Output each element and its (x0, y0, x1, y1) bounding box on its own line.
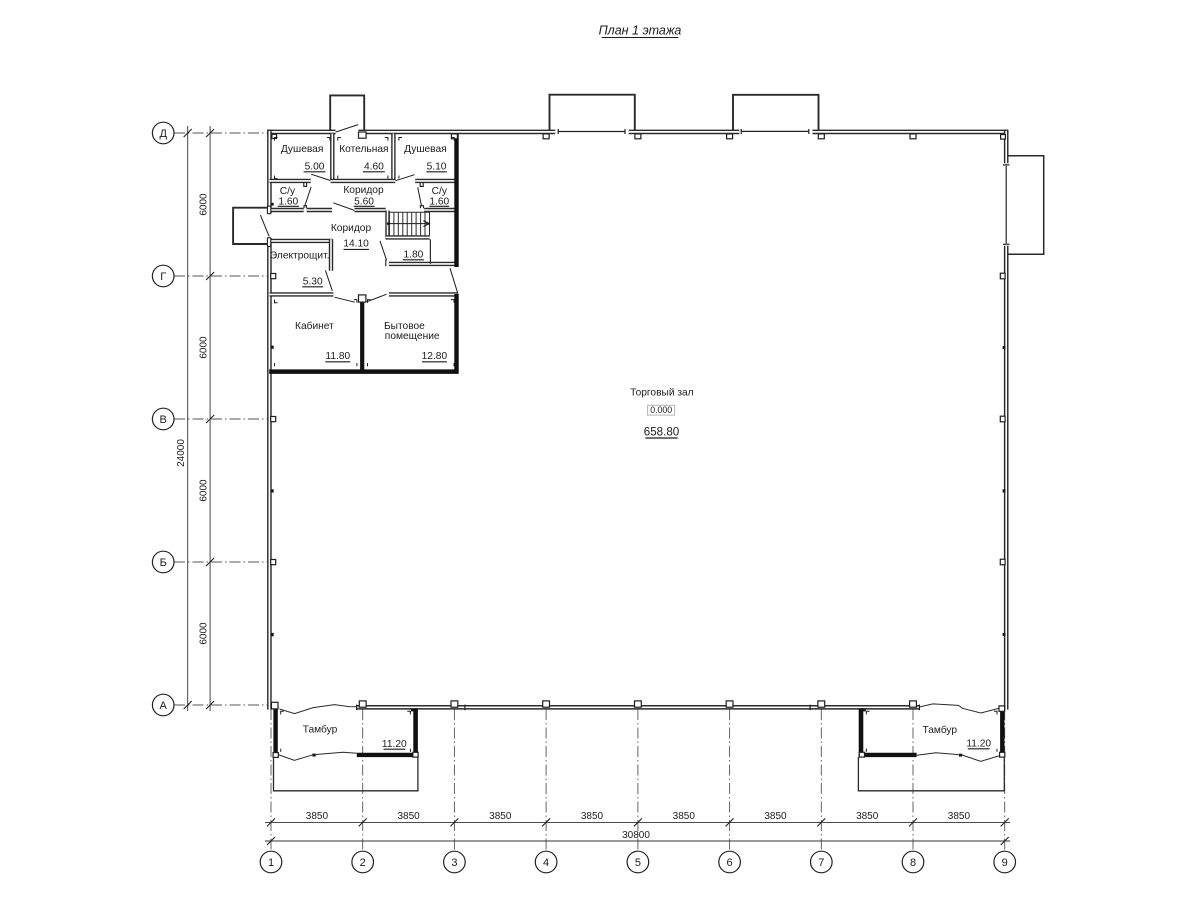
svg-text:5.60: 5.60 (354, 196, 374, 207)
svg-text:3850: 3850 (397, 811, 420, 822)
svg-text:Коридор: Коридор (343, 185, 384, 196)
svg-text:Электрощит.: Электрощит. (270, 251, 330, 262)
svg-text:С/у: С/у (432, 186, 448, 197)
svg-text:6: 6 (727, 857, 733, 869)
svg-text:Б: Б (160, 557, 167, 569)
svg-text:0.000: 0.000 (650, 405, 672, 415)
svg-text:Д: Д (159, 128, 167, 140)
svg-text:3850: 3850 (489, 811, 512, 822)
svg-text:3850: 3850 (306, 811, 329, 822)
svg-text:Коридор: Коридор (331, 223, 372, 234)
svg-text:Душевая: Душевая (404, 144, 447, 155)
svg-text:Кабинет: Кабинет (295, 320, 334, 332)
svg-text:1.60: 1.60 (429, 196, 449, 207)
svg-text:3850: 3850 (673, 811, 696, 822)
svg-text:5.10: 5.10 (427, 161, 447, 172)
svg-text:2: 2 (360, 857, 366, 869)
svg-text:6000: 6000 (199, 336, 210, 359)
svg-text:Г: Г (160, 271, 166, 283)
svg-text:А: А (160, 700, 168, 712)
svg-text:3850: 3850 (856, 811, 879, 822)
svg-text:3850: 3850 (764, 811, 787, 822)
svg-text:В: В (160, 414, 167, 426)
svg-text:6000: 6000 (199, 479, 210, 502)
svg-text:8: 8 (910, 857, 916, 869)
svg-text:Тамбур: Тамбур (923, 724, 958, 736)
svg-text:24000: 24000 (176, 439, 187, 467)
svg-text:5.30: 5.30 (303, 276, 323, 287)
svg-text:11.20: 11.20 (966, 738, 991, 749)
svg-text:4.60: 4.60 (364, 161, 384, 172)
svg-text:Тамбур: Тамбур (303, 723, 338, 735)
svg-text:1.60: 1.60 (278, 196, 298, 207)
svg-text:6000: 6000 (199, 193, 210, 216)
svg-text:12.80: 12.80 (422, 351, 448, 362)
svg-text:помещение: помещение (385, 331, 440, 342)
svg-text:План 1 этажа: План 1 этажа (599, 24, 682, 38)
svg-text:3850: 3850 (948, 811, 971, 822)
svg-text:5.00: 5.00 (305, 161, 325, 172)
svg-text:3: 3 (451, 857, 457, 869)
svg-text:9: 9 (1002, 857, 1008, 869)
svg-text:Торговый зал: Торговый зал (630, 387, 694, 398)
svg-text:7: 7 (818, 857, 824, 869)
svg-text:1.80: 1.80 (403, 249, 423, 260)
svg-text:Душевая: Душевая (281, 144, 324, 155)
svg-text:4: 4 (543, 857, 549, 869)
svg-text:С/у: С/у (280, 186, 296, 197)
svg-text:11.20: 11.20 (382, 739, 407, 750)
svg-text:1: 1 (268, 857, 274, 869)
svg-text:30800: 30800 (622, 830, 650, 841)
svg-text:3850: 3850 (581, 811, 604, 822)
svg-text:Котельная: Котельная (339, 144, 388, 155)
svg-text:14.10: 14.10 (343, 239, 369, 250)
svg-text:11.80: 11.80 (325, 351, 350, 362)
svg-text:6000: 6000 (199, 622, 210, 645)
svg-text:5: 5 (635, 857, 641, 869)
svg-text:658.80: 658.80 (644, 425, 679, 438)
